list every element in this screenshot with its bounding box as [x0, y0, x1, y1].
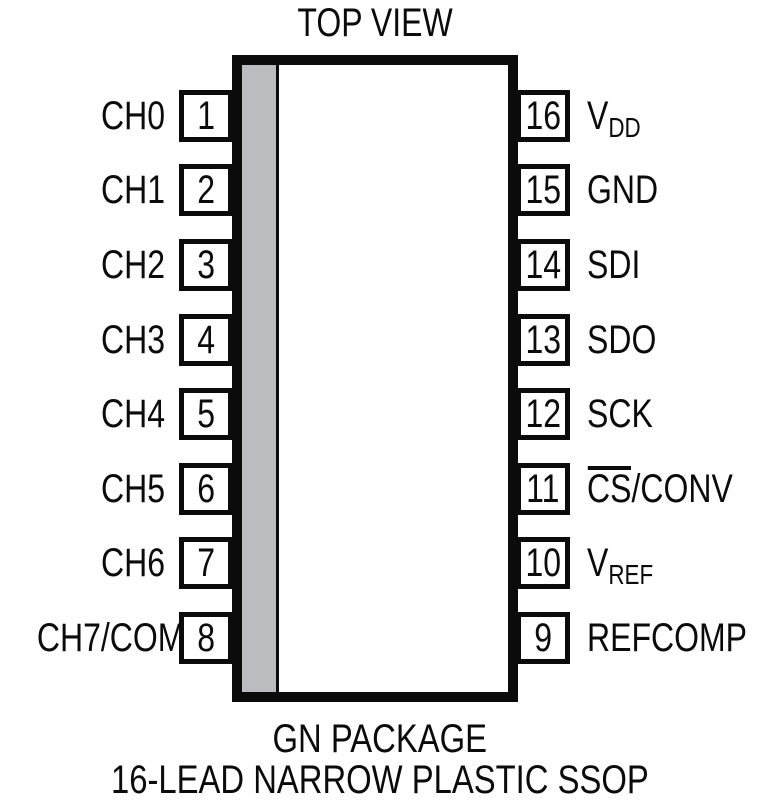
pin-name-label-ch1: CH1 — [0, 164, 165, 216]
pin-name-label-sdi: SDI — [587, 239, 654, 291]
pin-row: CH2 3 14 SDI — [0, 239, 760, 291]
pin-name-label-ch3: CH3 — [0, 314, 165, 366]
pin-number-box-12: 12 — [516, 388, 570, 440]
pin-name-label-ch7-com: CH7/COM — [0, 612, 165, 664]
pin-number-box-4: 4 — [179, 314, 233, 366]
top-view-text: TOP VIEW — [297, 1, 452, 45]
pin-name-label-ch5: CH5 — [0, 463, 165, 515]
pin-name-label-ch0: CH0 — [0, 90, 165, 142]
pin-number-box-6: 6 — [179, 463, 233, 515]
pin-number-box-15: 15 — [516, 164, 570, 216]
pin-name-label-ch4: CH4 — [0, 388, 165, 440]
pin-row: CH0 1 16 VDD — [0, 90, 760, 142]
pin-row: CH1 2 15 GND — [0, 164, 760, 216]
pin-name-label-vdd: VDD — [587, 90, 654, 142]
pin-row: CH5 6 11 CS/CONV — [0, 463, 760, 515]
top-view-label: TOP VIEW — [232, 1, 518, 45]
pin-row: CH7/COM 8 9 REFCOMP — [0, 612, 760, 664]
pin-row: CH6 7 10 VREF — [0, 537, 760, 589]
pin-name-label-cs-conv: CS/CONV — [587, 463, 760, 515]
pin-number-box-11: 11 — [516, 463, 570, 515]
package-caption-line2: 16-LEAD NARROW PLASTIC SSOP — [0, 760, 760, 801]
pin-row: CH4 5 12 SCK — [0, 388, 760, 440]
pin-number-box-9: 9 — [516, 612, 570, 664]
package-caption: GN PACKAGE 16-LEAD NARROW PLASTIC SSOP — [0, 719, 760, 801]
pin-number-box-7: 7 — [179, 537, 233, 589]
pinout-diagram: { "title": "TOP VIEW", "package": { "cap… — [0, 0, 760, 812]
pin-name-label-ch6: CH6 — [0, 537, 165, 589]
pin-number-box-1: 1 — [179, 90, 233, 142]
pin-name-label-sdo: SDO — [587, 314, 674, 366]
pin-number-box-5: 5 — [179, 388, 233, 440]
pin-number-box-14: 14 — [516, 239, 570, 291]
pin-name-label-vref: VREF — [587, 537, 670, 589]
pin-row: CH3 4 13 SDO — [0, 314, 760, 366]
pin1-indicator-stripe — [242, 65, 279, 692]
pin-number-box-10: 10 — [516, 537, 570, 589]
pin-number-box-13: 13 — [516, 314, 570, 366]
pin-name-label-ch2: CH2 — [0, 239, 165, 291]
pin-number-box-8: 8 — [179, 612, 233, 664]
pin-name-label-gnd: GND — [587, 164, 676, 216]
pin-name-label-refcomp: REFCOMP — [587, 612, 760, 664]
package-body — [232, 55, 518, 702]
pin-number-box-3: 3 — [179, 239, 233, 291]
package-caption-line1: GN PACKAGE — [0, 719, 760, 760]
pin-name-label-sck: SCK — [587, 388, 669, 440]
pin-number-box-16: 16 — [516, 90, 570, 142]
pin-number-box-2: 2 — [179, 164, 233, 216]
